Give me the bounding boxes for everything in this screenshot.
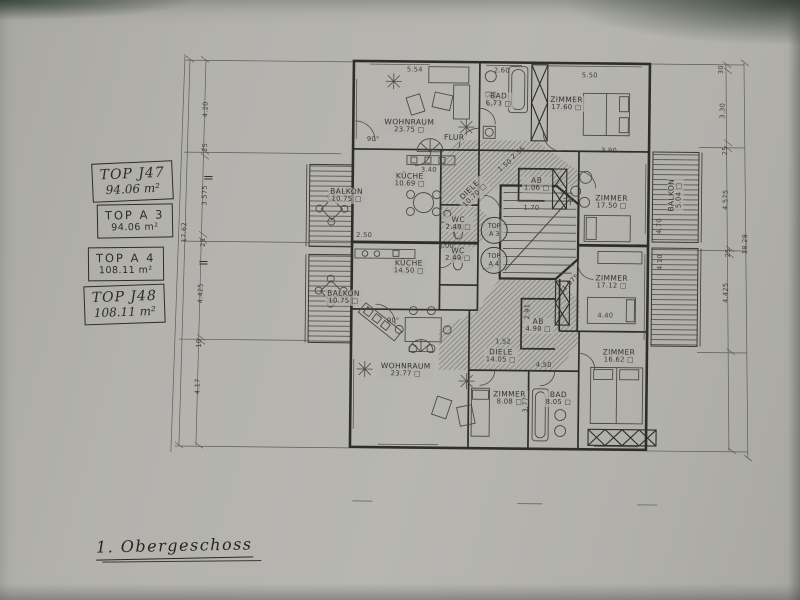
room-area: 16.62 □ [602, 357, 635, 365]
room-area: 8.05 □ [546, 399, 572, 407]
dimension-label: 5.54 [407, 65, 423, 73]
room-area: 5.04 □ [676, 179, 684, 212]
dimension-label: 17.62 [180, 222, 188, 242]
dimension-label: 4.425 [721, 283, 729, 303]
dimension-label: 25 [721, 146, 729, 155]
dimension-value: 30 [717, 65, 725, 74]
dimension-value: 90° [367, 135, 380, 143]
dimension-value: 5.50 [582, 71, 598, 79]
room-area: 17.60 □ [550, 104, 583, 112]
room-label: FLUR [442, 134, 467, 143]
dimension-value: 4.575 [721, 190, 729, 210]
shafts [528, 65, 660, 446]
room-label: BAD 8.05 □ [544, 391, 574, 407]
dimension-label: 4.70 [655, 218, 663, 234]
dimension-value: 1.52 [495, 337, 511, 345]
room-label: DIELE 14.05 □ [484, 348, 518, 364]
dimension-label: 25 [201, 143, 209, 152]
dimension-value: 2.91 [523, 304, 531, 320]
room-label: ZIMMER 17.12 □ [593, 274, 630, 290]
room-area: 17.12 □ [595, 283, 628, 291]
room-label: WOHNRAUM 23.77 □ [379, 362, 433, 379]
dimension-value: 4.425 [721, 283, 729, 303]
dimension-label: 4.10 [656, 254, 664, 270]
dimension-label: 3.575 [200, 185, 208, 205]
room-area: 6.73 □ [486, 101, 512, 109]
dimension-label: 3.77 [521, 397, 529, 413]
floor-plan-drawing [0, 0, 800, 600]
scanned-floor-plan-sheet: TOP J47 94.06 m² TOP A 3 94.06 m² TOP A … [0, 0, 800, 600]
room-area: 2.49 □ [445, 255, 471, 263]
room-area: 4.98 □ [525, 326, 551, 334]
dimension-value: 90° [387, 316, 400, 324]
dimension-label: 4.575 [721, 190, 729, 210]
room-label: ZIMMER 17.60 □ [548, 96, 585, 112]
dimension-label: 4.20 [201, 101, 209, 117]
dimension-label: 2.50 [356, 231, 372, 239]
dimension-value: 4.17 [193, 378, 201, 394]
room-area: 10.75 □ [330, 196, 363, 204]
apartment-entry-tag: TOP A 3 [481, 217, 508, 244]
dimension-value: 3.40 [421, 166, 437, 174]
dimension-value: 25 [724, 248, 732, 257]
room-area: 10.75 □ [327, 298, 360, 306]
dimension-value: 1.70 [523, 204, 539, 212]
dimension-value: 4.20 [201, 101, 209, 117]
room-area: 17.50 □ [595, 203, 628, 211]
room-label: BALKON 10.75 □ [328, 188, 365, 204]
dimension-value: 4.40 [597, 311, 613, 319]
dimension-value: 3.30 [718, 103, 726, 119]
dimension-label: 18.28 [741, 234, 749, 254]
room-label: BALKON 10.75 □ [325, 290, 362, 306]
dimension-label: 4.50 [536, 361, 552, 369]
room-label: ZIMMER 16.62 □ [600, 348, 637, 364]
dimension-label: 3.90 [601, 146, 617, 154]
apartment-entry-tag: TOP A 4 [480, 247, 507, 274]
dimension-label: 2.91 [523, 304, 531, 320]
dimension-label: 5.50 [582, 71, 598, 79]
dimension-value: 25 [201, 143, 209, 152]
floor-plan: WOHNRAUM 23.75 □ BAD 6.73 □ ZIMMER 17.60… [0, 0, 800, 600]
dimension-label: 25 [724, 248, 732, 257]
room-label: AB 4.98 □ [523, 318, 553, 334]
dimension-value: 4.10 [656, 254, 664, 270]
dimension-value: 4.50 [536, 361, 552, 369]
room-label: AB 1.06 □ [522, 177, 552, 193]
stairs [503, 192, 577, 273]
dimension-label: 3.00 [438, 242, 454, 250]
room-label: WC 2.49 □ [443, 216, 473, 232]
room-area: 14.05 □ [486, 357, 516, 365]
room-label: KÜCHE 10.69 □ [393, 172, 427, 188]
room-area: 23.75 □ [384, 127, 434, 135]
dimension-label: 4.425 [196, 283, 204, 303]
dimension-value: 4.70 [655, 218, 663, 234]
room-area: 23.77 □ [381, 371, 431, 379]
dimension-label: 25 [199, 238, 207, 247]
room-area: 14.50 □ [394, 268, 424, 276]
dimension-label: 4.40 [597, 311, 613, 319]
dimension-value: 3.00 [438, 242, 454, 250]
entry-tag-line2: A 4 [489, 260, 499, 267]
dimension-value: 5.54 [407, 65, 423, 73]
dimension-label: 10 [195, 339, 203, 348]
dimension-label: 2.60 [494, 66, 510, 74]
room-label: WOHNRAUM 23.75 □ [382, 118, 436, 135]
dimension-label: 1.70 [523, 204, 539, 212]
dimension-value: 3.77 [521, 397, 529, 413]
room-label: ZIMMER 17.50 □ [593, 194, 630, 210]
dimension-label: 3.40 [421, 166, 437, 174]
dimension-value: 17.62 [180, 222, 188, 242]
dimension-value: 2.50 [356, 231, 372, 239]
room-area: 10.69 □ [395, 181, 425, 189]
dimension-label: 90° [387, 316, 400, 324]
dimension-label: 4.17 [193, 378, 201, 394]
entry-tag-line2: A 3 [489, 230, 499, 237]
dimension-label: 30 [717, 65, 725, 74]
room-label: BAD 6.73 □ [484, 92, 514, 108]
dimension-label: 90° [367, 135, 380, 143]
room-area: 2.49 □ [445, 224, 471, 232]
dimension-value: 25 [199, 238, 207, 247]
dimension-value: 10 [195, 339, 203, 348]
dimension-value: 4.425 [196, 283, 204, 303]
room-label: BALKON 5.04 □ [667, 177, 683, 214]
room-label: KÜCHE 14.50 □ [392, 259, 426, 275]
room-area: 1.06 □ [524, 185, 550, 193]
dimension-label: 3.30 [718, 103, 726, 119]
dimension-value: 25 [721, 146, 729, 155]
dimension-value: 18.28 [741, 234, 749, 254]
room-name: FLUR [444, 134, 465, 143]
dimension-value: 3.575 [200, 185, 208, 205]
dimension-label: 1.52 [495, 337, 511, 345]
dimension-value: 2.60 [494, 66, 510, 74]
dimension-value: 3.90 [601, 146, 617, 154]
